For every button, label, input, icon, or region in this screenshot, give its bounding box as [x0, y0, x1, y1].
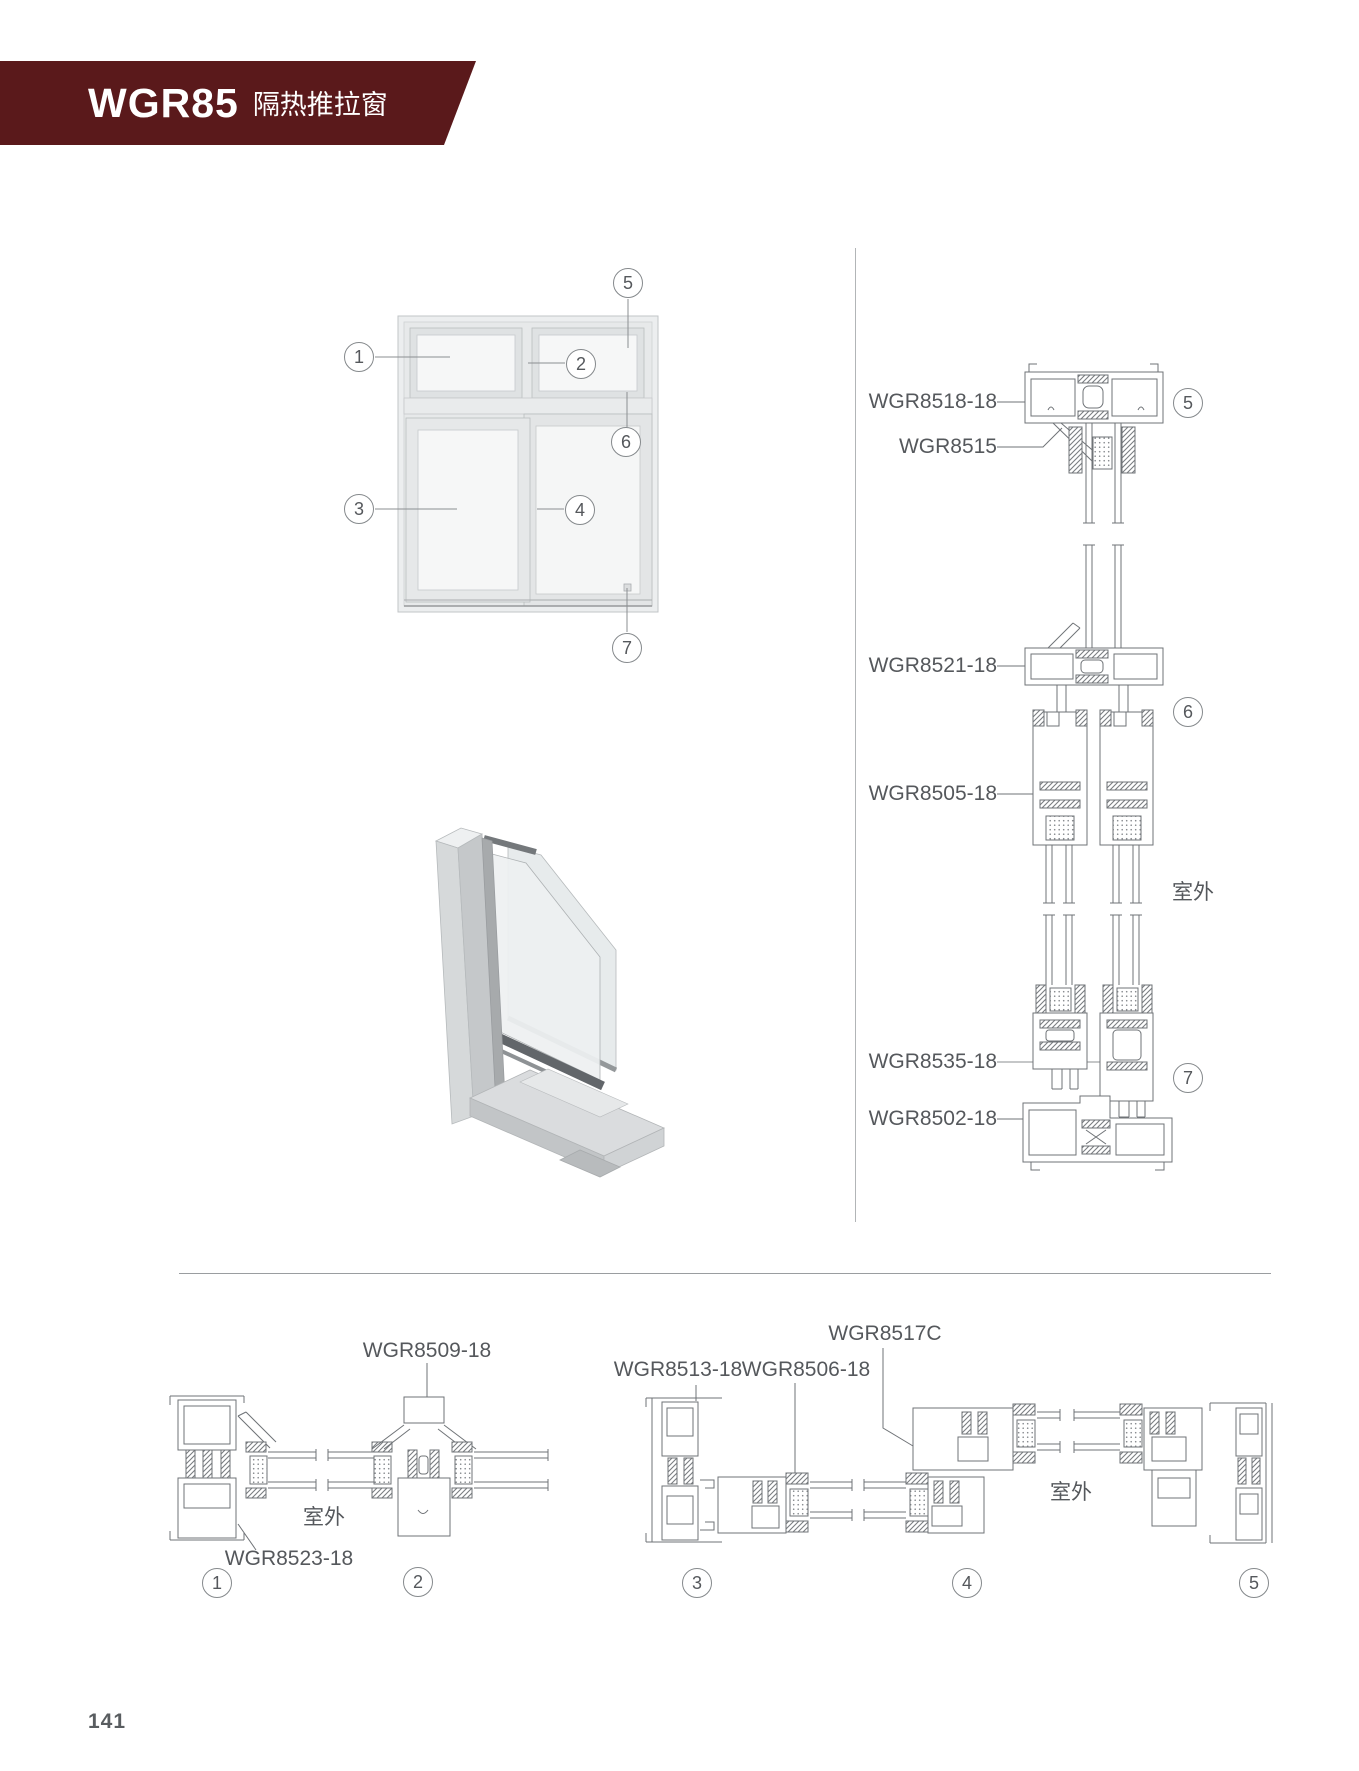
- page-number: 141: [88, 1710, 126, 1734]
- series-title: WGR85: [88, 83, 239, 124]
- plan-callout-3: 3: [682, 1568, 712, 1598]
- profile-3d-render: [436, 828, 664, 1177]
- elevation-callout-4: 4: [565, 495, 595, 525]
- header-banner: WGR85 隔热推拉窗: [0, 61, 476, 145]
- label-sash-profile: WGR8505-18: [869, 781, 997, 807]
- label-half-profile: WGR8517C: [828, 1321, 941, 1347]
- label-frame-jamb: WGR8523-18: [225, 1546, 353, 1572]
- section-callout-7: 7: [1173, 1063, 1203, 1093]
- outdoor-label-right: 室外: [1050, 1480, 1092, 1506]
- plan-callout-2: 2: [403, 1567, 433, 1597]
- elevation-callout-7: 7: [612, 633, 642, 663]
- elevation-callout-2: 2: [566, 349, 596, 379]
- label-interlock: WGR8521-18: [869, 653, 997, 679]
- elevation-diagram: [375, 299, 658, 632]
- label-top-frame: WGR8518-18: [869, 389, 997, 415]
- technical-drawings: [0, 0, 1359, 1771]
- label-sash: WGR8506-18: [742, 1357, 870, 1383]
- label-bottom-frame: WGR8502-18: [869, 1106, 997, 1132]
- section-callout-6: 6: [1173, 697, 1203, 727]
- section-callout-5: 5: [1173, 388, 1203, 418]
- label-glazing-bead: WGR8515: [899, 434, 997, 460]
- elevation-callout-6: 6: [611, 427, 641, 457]
- product-name: 隔热推拉窗: [253, 88, 388, 119]
- outdoor-label-vertical: 室外: [1172, 880, 1214, 906]
- elevation-callout-5: 5: [613, 268, 643, 298]
- catalog-page: WGR85 隔热推拉窗 1 2 3 4 5 6 7 WGR8518-18 WGR…: [0, 0, 1359, 1771]
- outdoor-label-left: 室外: [303, 1505, 345, 1531]
- horizontal-section-left-drawing: [170, 1363, 548, 1550]
- plan-callout-5: 5: [1239, 1568, 1269, 1598]
- label-mullion: WGR8509-18: [363, 1338, 491, 1364]
- elevation-callout-3: 3: [344, 494, 374, 524]
- label-jamb: WGR8513-18: [614, 1357, 742, 1383]
- label-sash-bottom: WGR8535-18: [869, 1049, 997, 1075]
- vertical-section-drawing: [997, 364, 1172, 1170]
- plan-callout-1: 1: [202, 1568, 232, 1598]
- plan-callout-4: 4: [952, 1568, 982, 1598]
- elevation-callout-1: 1: [344, 342, 374, 372]
